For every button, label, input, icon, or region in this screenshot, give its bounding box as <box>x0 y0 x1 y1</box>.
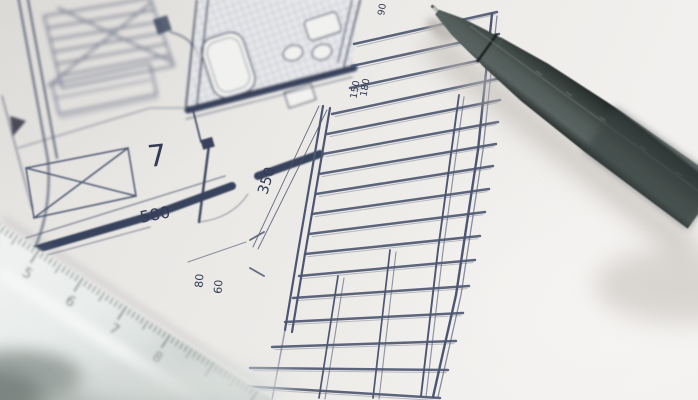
dim-offset-a-label: 80 <box>193 273 207 288</box>
deck-joist <box>421 95 459 396</box>
door-jamb <box>154 16 171 33</box>
dim-room-width-label: 580 <box>138 202 172 226</box>
dim-offset-b-label: 60 <box>212 279 226 294</box>
dim-opening-label: 350 <box>255 165 278 196</box>
ruler: 5 6 7 8 <box>0 218 302 400</box>
dim-edge-b-label: 180 <box>359 78 373 98</box>
room-7 <box>18 110 320 263</box>
floor-plan-photo: 7 580 350 80 60 150 180 90 5 6 7 8 <box>0 0 698 400</box>
stairs <box>44 0 174 118</box>
room-number-label: 7 <box>146 138 169 175</box>
bathroom <box>186 0 360 119</box>
dim-edge-c-label: 90 <box>376 3 389 17</box>
scene-canvas: 7 580 350 80 60 150 180 90 5 6 7 8 <box>0 0 698 400</box>
furniture-with-cross <box>26 148 136 218</box>
